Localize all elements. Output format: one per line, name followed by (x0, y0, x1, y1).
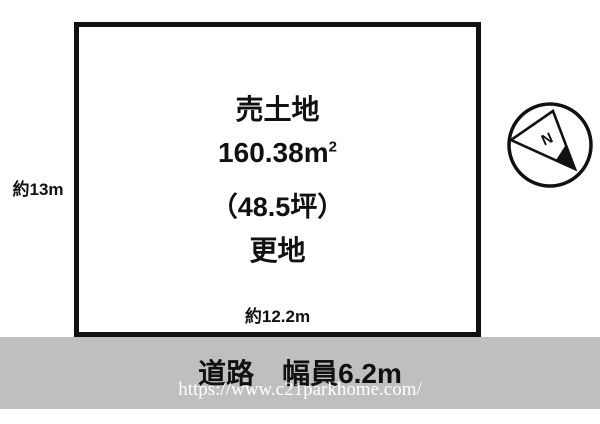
plot-area-m2: 160.38m2 (74, 137, 481, 169)
watermark-url: https://www.c21parkhome.com/ (0, 379, 600, 401)
plot-condition: 更地 (74, 229, 481, 269)
north-compass-icon: N (503, 98, 599, 194)
frontage-dimension-label: 約12.2m (74, 302, 481, 327)
land-diagram-canvas: 売土地 160.38m2 （48.5坪） 更地 約12.2m 約13m N 道路… (0, 0, 600, 424)
plot-area-m2-value: 160.38m (218, 137, 329, 168)
depth-dimension-label: 約13m (6, 175, 70, 200)
plot-title: 売土地 (74, 88, 481, 128)
plot-area-tsubo: （48.5坪） (74, 185, 481, 224)
plot-area-m2-superscript: 2 (329, 139, 337, 156)
land-plot-outline (74, 22, 481, 337)
